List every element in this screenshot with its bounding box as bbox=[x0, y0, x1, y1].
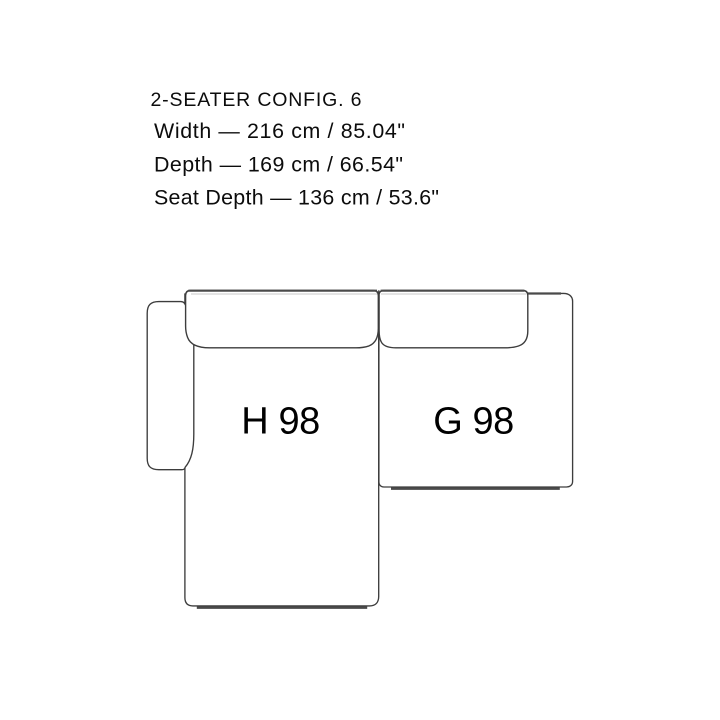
svg-text:H 98: H 98 bbox=[241, 401, 320, 443]
svg-text:2-SEATER CONFIG. 6: 2-SEATER CONFIG. 6 bbox=[151, 89, 362, 111]
svg-text:Depth — 169 cm / 66.54": Depth — 169 cm / 66.54" bbox=[154, 153, 403, 177]
svg-text:Width — 216 cm / 85.04": Width — 216 cm / 85.04" bbox=[154, 119, 405, 143]
svg-text:Seat Depth — 136 cm / 53.6": Seat Depth — 136 cm / 53.6" bbox=[154, 186, 439, 210]
svg-text:G 98: G 98 bbox=[433, 401, 514, 443]
